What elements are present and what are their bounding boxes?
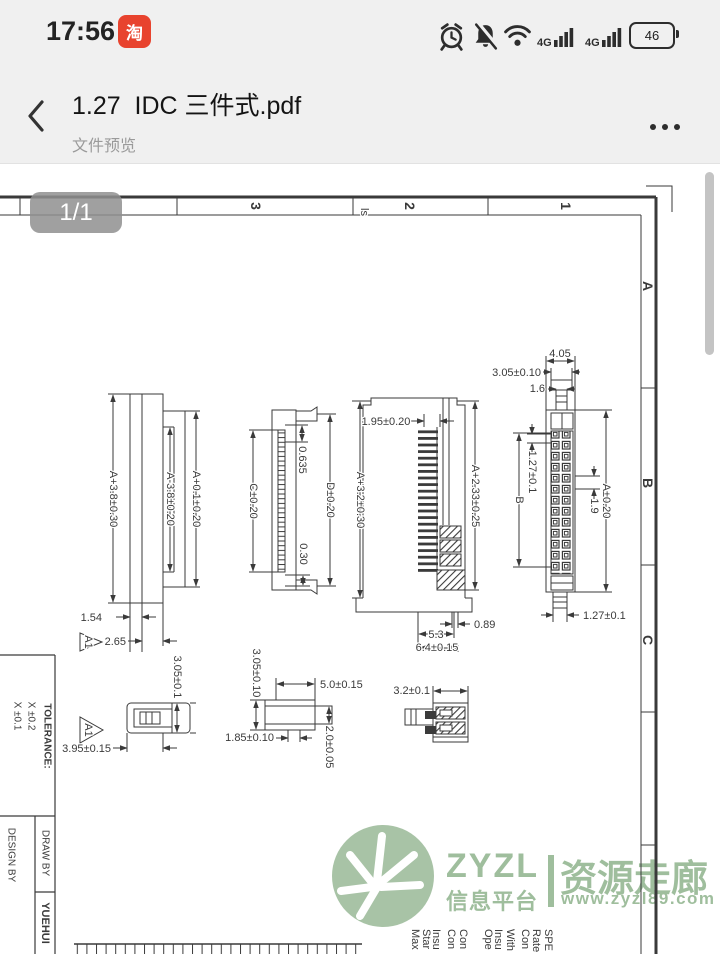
zone-letter: A (640, 281, 656, 291)
zone-letter: B (640, 478, 656, 488)
signal-label: 4G (537, 38, 552, 48)
dim-label: A+3.8±0.30 (107, 471, 119, 528)
wifi-icon (503, 22, 532, 48)
drafter-name: YUEHUI (39, 902, 51, 944)
view3-dim-lines (360, 402, 475, 648)
datum-flag-label: A1 (82, 723, 94, 736)
dim-label: 3.05±0.10 (250, 649, 262, 698)
taobao-glyph: 淘 (126, 19, 143, 44)
file-title: 1.27 IDC 三件式.pdf (72, 86, 301, 122)
more-options-button[interactable] (650, 124, 680, 130)
tolerance-row: X ±0.2 (26, 702, 37, 731)
datum-flag-label: A1 (82, 635, 94, 648)
signal-label: 4G (585, 38, 600, 48)
dim-label: 2.65 (105, 636, 126, 648)
spec-line: SPE (542, 929, 554, 951)
battery-icon: 46 (629, 22, 675, 49)
dim-label: 1.54 (81, 612, 102, 624)
dim-label: A+0.1±0.20 (190, 471, 202, 528)
spec-line: Con (457, 929, 469, 949)
spec-line: Rate (530, 929, 542, 952)
zone-letter: C (640, 635, 656, 645)
design-by-label: DESIGN BY (6, 828, 17, 883)
dim-label: A+2.33±0.25 (469, 465, 481, 528)
dim-label: 1.27±0.1 (526, 451, 538, 494)
back-button[interactable] (24, 96, 50, 136)
spec-line: Con (519, 929, 531, 949)
view2-outline (249, 407, 336, 594)
taobao-app-icon: 淘 (118, 15, 151, 48)
dim-label: 3.2±0.1 (393, 685, 430, 697)
page-indicator-badge: 1/1 (30, 192, 122, 233)
dim-label: 3.95±0.15 (62, 743, 111, 755)
dim-label: 1.27±0.1 (583, 610, 626, 622)
dim-label: 0.89 (474, 619, 495, 631)
spec-line: Con (445, 929, 457, 949)
zone-number: 3 (248, 202, 264, 210)
spec-line: With (504, 929, 516, 951)
top-bar: 17:56 淘 4G (0, 0, 720, 164)
signal-4g-icon-2: 4G (585, 22, 623, 48)
dim-label: 5.0±0.15 (320, 679, 363, 691)
dim-label: 1.9 (588, 498, 600, 513)
dim-label: A+3.2±0.30 (354, 472, 366, 529)
tolerance-row: X ±0.1 (12, 702, 23, 731)
dim-label: 3.05±0.10 (492, 367, 541, 379)
dim-label: 3.05±0.1 (171, 656, 183, 699)
dim-label: A-3.8±0.20 (164, 472, 176, 526)
view2-dim-lines (253, 415, 330, 585)
stray-text: ls (358, 208, 370, 216)
signal-bars-icon (601, 22, 623, 48)
dim-label: 0.635 (296, 446, 308, 474)
signal-4g-icon-1: 4G (537, 22, 575, 48)
dim-label: A±0.20 (600, 484, 612, 519)
dim-label: D±0.20 (324, 482, 336, 517)
draw-by-label: DRAW BY (40, 830, 51, 877)
dim-label: 6.4±0.15 (416, 642, 459, 654)
dim-label: B (513, 496, 525, 503)
dim-label: 4.05 (549, 348, 570, 360)
view1-outline (108, 394, 200, 652)
battery-percent: 46 (645, 28, 659, 43)
dim-label: 1.95±0.20 (362, 416, 411, 428)
dim-label: 0.30 (297, 543, 309, 564)
spec-line: Insu (492, 929, 504, 950)
dim-label: 1.85±0.10 (225, 732, 274, 744)
spec-line: Insu (430, 929, 442, 950)
spec-line: Max (409, 929, 421, 950)
zone-number: 1 (558, 202, 574, 210)
vertical-scrollbar[interactable] (705, 172, 714, 355)
dim-label: 1.6 (530, 383, 545, 395)
signal-bars-icon (553, 22, 575, 48)
zone-number: 2 (402, 202, 418, 210)
file-subtitle: 文件预览 (72, 132, 136, 156)
dim-label: C±0.20 (247, 483, 259, 518)
phone-screen: ZYZL 信息平台 资源走廊 www.zyzl89.com (0, 0, 720, 954)
tolerance-label: TOLERANCE: (42, 703, 53, 768)
dim-label: 5.3 (428, 629, 443, 641)
alarm-icon (438, 22, 465, 51)
view3-outline (352, 398, 479, 652)
view5-outline (127, 703, 196, 752)
bell-muted-icon (472, 22, 499, 51)
status-time: 17:56 (46, 16, 115, 47)
spec-text-fragments: Max Star Insu Con Con Ope Insu With Con … (409, 929, 554, 952)
clipped-bottom-view (74, 944, 362, 954)
dim-label: 2.0±0.05 (323, 726, 335, 769)
